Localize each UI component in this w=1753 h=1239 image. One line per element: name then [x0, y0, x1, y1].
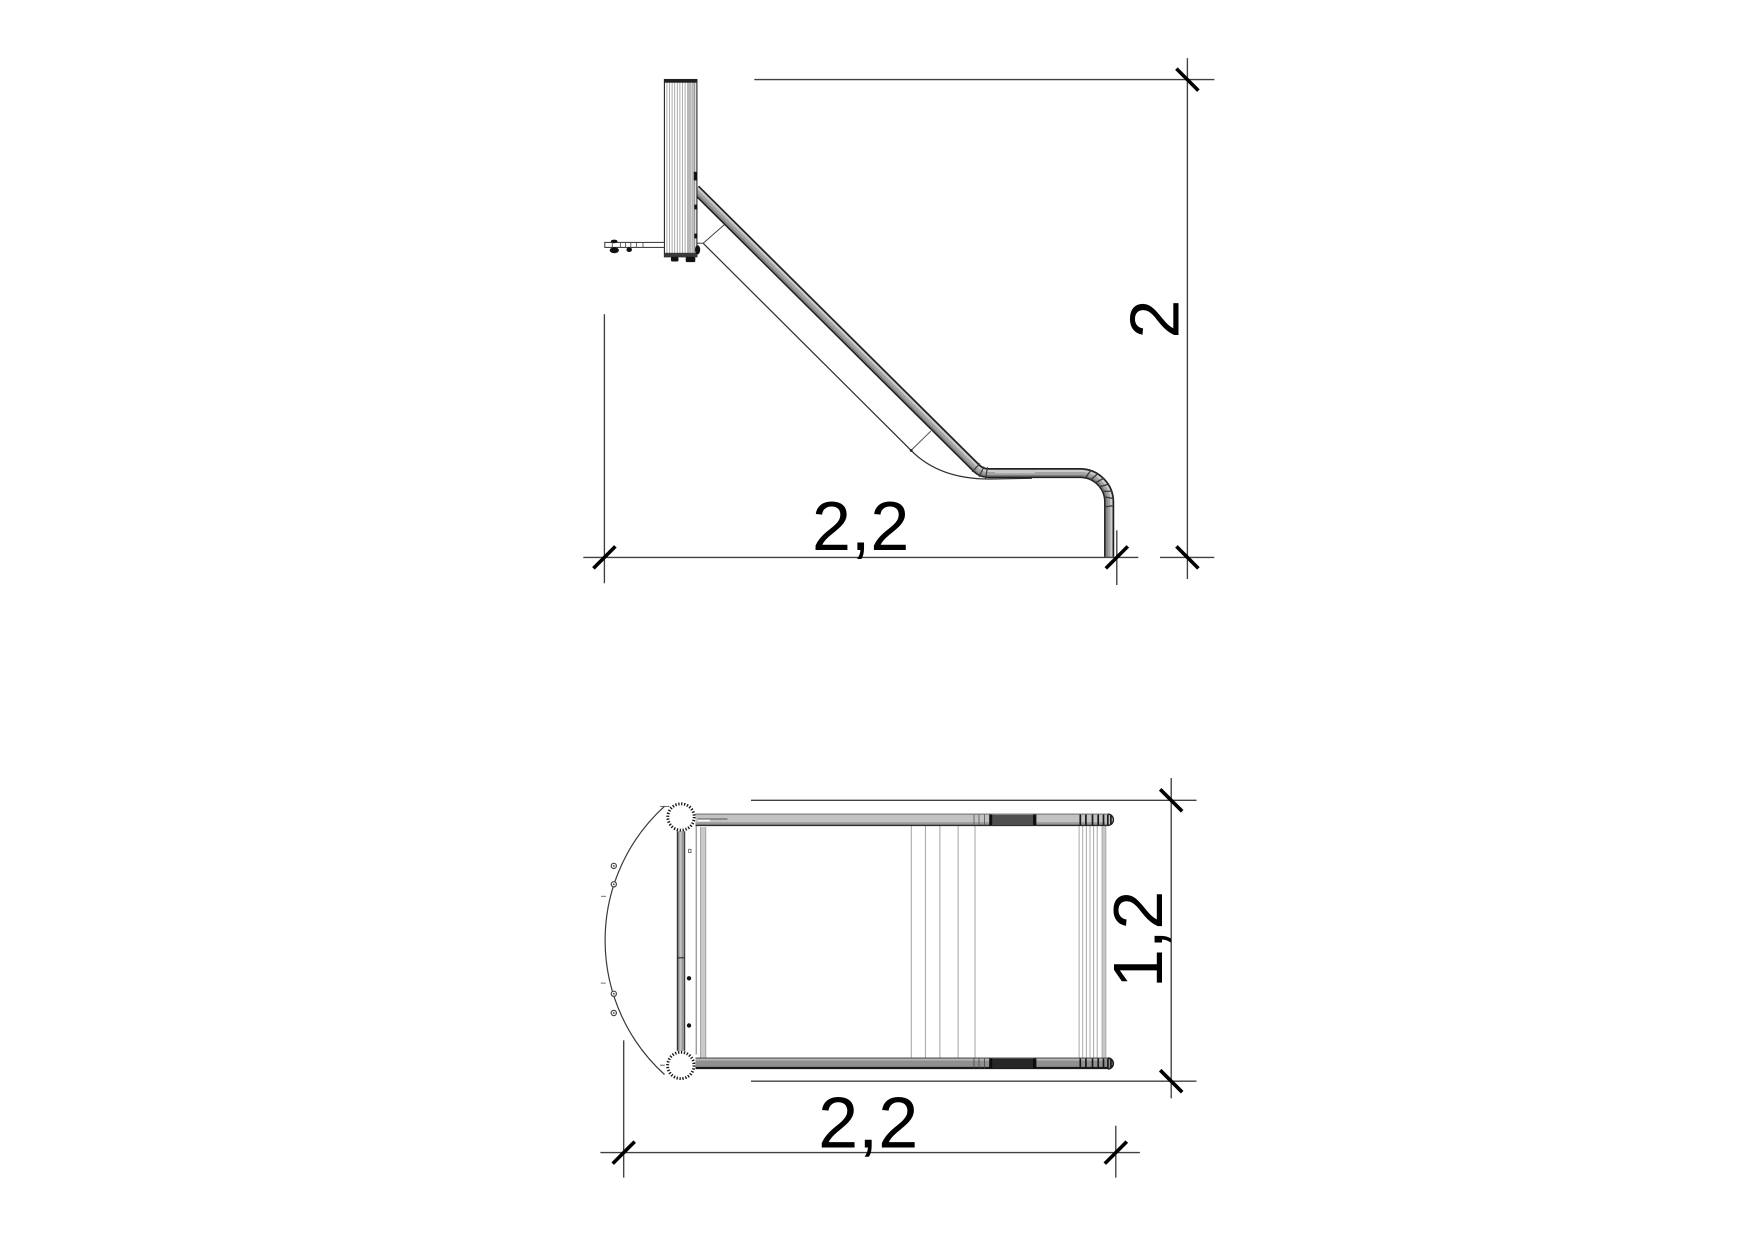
svg-text:2,2: 2,2 — [812, 487, 909, 565]
svg-text:2: 2 — [1116, 300, 1194, 339]
svg-text:1,2: 1,2 — [1099, 891, 1177, 988]
svg-text:2,2: 2,2 — [818, 1084, 918, 1164]
